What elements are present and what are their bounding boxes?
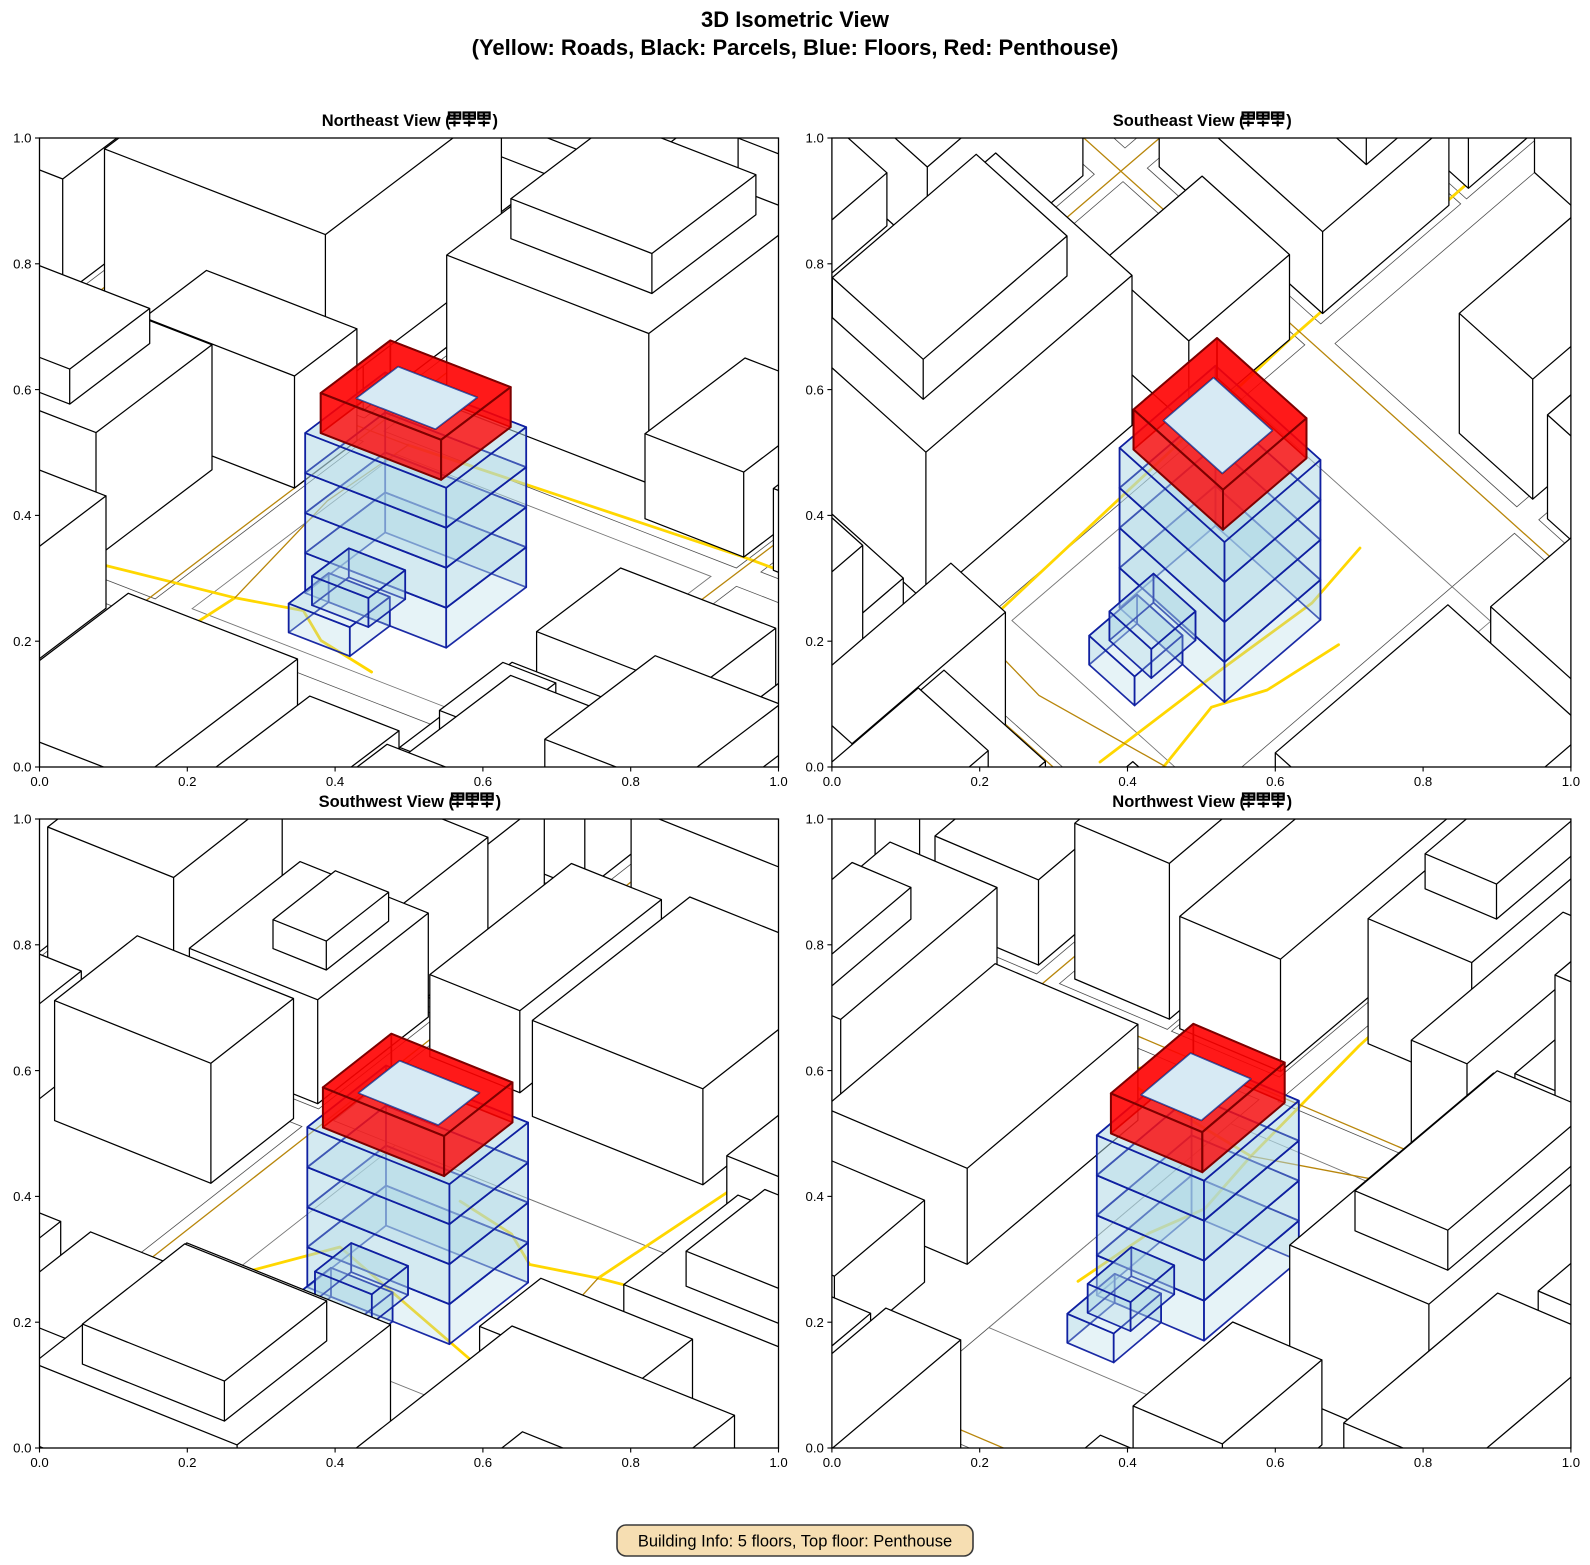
svg-text:0.2: 0.2 — [13, 1315, 31, 1330]
svg-text:0.0: 0.0 — [806, 760, 824, 775]
svg-text:0.4: 0.4 — [806, 508, 824, 523]
svg-text:0.2: 0.2 — [178, 1455, 196, 1470]
svg-text:0.8: 0.8 — [622, 774, 640, 789]
svg-text:0.8: 0.8 — [13, 938, 31, 953]
svg-text:0.8: 0.8 — [622, 1455, 640, 1470]
svg-text:0.6: 0.6 — [806, 382, 824, 397]
svg-text:Southwest View (: Southwest View ( — [319, 793, 455, 811]
svg-text:0.0: 0.0 — [13, 760, 31, 775]
svg-text:0.4: 0.4 — [13, 508, 31, 523]
svg-text:): ) — [496, 793, 502, 811]
svg-text:0.0: 0.0 — [806, 1441, 824, 1456]
svg-text:0.0: 0.0 — [823, 774, 841, 789]
svg-text:Northwest View (: Northwest View ( — [1112, 793, 1245, 811]
svg-text:1.0: 1.0 — [806, 131, 824, 146]
svg-text:0.8: 0.8 — [1414, 774, 1432, 789]
svg-text:0.2: 0.2 — [806, 1315, 824, 1330]
svg-text:Northeast View (: Northeast View ( — [322, 112, 451, 130]
svg-text:0.6: 0.6 — [474, 1455, 492, 1470]
svg-text:0.4: 0.4 — [326, 1455, 344, 1470]
svg-text:0.8: 0.8 — [1414, 1455, 1432, 1470]
svg-text:0.2: 0.2 — [971, 774, 989, 789]
svg-text:Building Info: 5 floors, Top f: Building Info: 5 floors, Top floor: Pent… — [638, 1533, 952, 1551]
svg-text:): ) — [493, 112, 499, 130]
svg-text:): ) — [1287, 793, 1293, 811]
svg-text:0.6: 0.6 — [806, 1063, 824, 1078]
svg-text:0.8: 0.8 — [806, 938, 824, 953]
svg-text:0.6: 0.6 — [1266, 774, 1284, 789]
svg-text:1.0: 1.0 — [769, 1455, 787, 1470]
svg-text:1.0: 1.0 — [1562, 774, 1580, 789]
svg-text:(Yellow: Roads, Black: Parcels: (Yellow: Roads, Black: Parcels, Blue: Fl… — [472, 35, 1119, 60]
svg-text:0.2: 0.2 — [806, 634, 824, 649]
svg-text:0.0: 0.0 — [30, 774, 48, 789]
svg-text:0.0: 0.0 — [823, 1455, 841, 1470]
svg-text:0.4: 0.4 — [1118, 774, 1136, 789]
svg-text:0.4: 0.4 — [13, 1189, 31, 1204]
svg-text:0.4: 0.4 — [1118, 1455, 1136, 1470]
svg-text:0.8: 0.8 — [13, 257, 31, 272]
svg-text:0.6: 0.6 — [13, 382, 31, 397]
svg-text:0.6: 0.6 — [474, 774, 492, 789]
svg-text:0.4: 0.4 — [326, 774, 344, 789]
svg-text:0.0: 0.0 — [30, 1455, 48, 1470]
svg-text:1.0: 1.0 — [1562, 1455, 1580, 1470]
svg-text:1.0: 1.0 — [13, 131, 31, 146]
svg-text:3D Isometric View: 3D Isometric View — [701, 7, 890, 32]
svg-text:0.0: 0.0 — [13, 1441, 31, 1456]
svg-text:Southeast View (: Southeast View ( — [1113, 112, 1245, 130]
svg-text:1.0: 1.0 — [769, 774, 787, 789]
svg-text:1.0: 1.0 — [13, 812, 31, 827]
svg-text:0.4: 0.4 — [806, 1189, 824, 1204]
svg-text:0.8: 0.8 — [806, 257, 824, 272]
svg-text:0.2: 0.2 — [13, 634, 31, 649]
svg-text:): ) — [1286, 112, 1292, 130]
svg-text:0.6: 0.6 — [13, 1063, 31, 1078]
svg-text:0.2: 0.2 — [971, 1455, 989, 1470]
svg-text:1.0: 1.0 — [806, 812, 824, 827]
svg-text:0.6: 0.6 — [1266, 1455, 1284, 1470]
svg-text:0.2: 0.2 — [178, 774, 196, 789]
